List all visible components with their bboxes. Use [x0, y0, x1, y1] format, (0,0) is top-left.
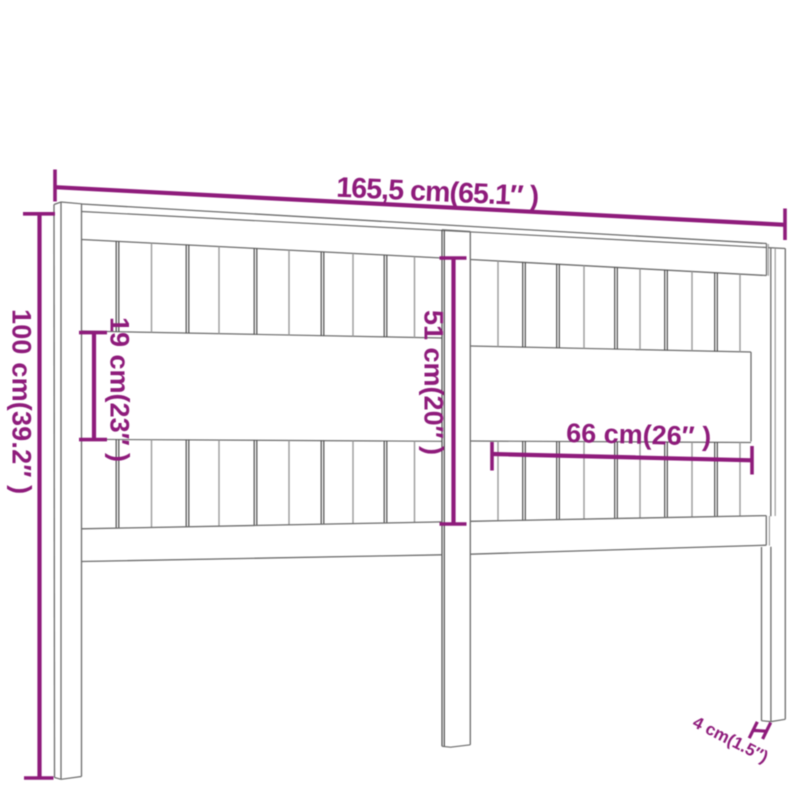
svg-text:19 cm(23″ ): 19 cm(23″ ) [105, 317, 135, 462]
svg-text:100 cm(39.2″ ): 100 cm(39.2″ ) [7, 309, 37, 494]
svg-text:66 cm(26″ ): 66 cm(26″ ) [566, 418, 712, 452]
svg-text:51 cm(20″ ): 51 cm(20″ ) [419, 310, 449, 455]
